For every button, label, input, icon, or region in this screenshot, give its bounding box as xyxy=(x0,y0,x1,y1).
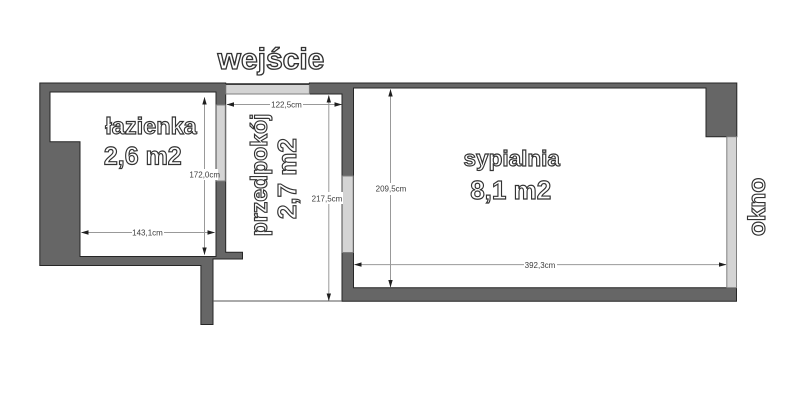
svg-text:łazienka: łazienka xyxy=(105,113,197,139)
svg-text:209,5cm: 209,5cm xyxy=(376,185,407,194)
svg-text:sypialnia: sypialnia xyxy=(464,146,561,171)
svg-text:8,1 m2: 8,1 m2 xyxy=(470,175,551,205)
svg-text:przedpokój: przedpokój xyxy=(246,114,272,237)
svg-text:okno: okno xyxy=(744,178,771,237)
svg-text:392,3cm: 392,3cm xyxy=(525,261,556,270)
svg-text:143,1cm: 143,1cm xyxy=(132,229,163,238)
svg-text:122,5cm: 122,5cm xyxy=(271,101,302,110)
svg-text:172,0cm: 172,0cm xyxy=(189,171,220,180)
svg-text:wejście: wejście xyxy=(217,43,325,76)
svg-text:2,7 m2: 2,7 m2 xyxy=(272,138,302,219)
svg-text:217,5cm: 217,5cm xyxy=(312,195,343,204)
svg-text:2,6 m2: 2,6 m2 xyxy=(104,143,182,171)
